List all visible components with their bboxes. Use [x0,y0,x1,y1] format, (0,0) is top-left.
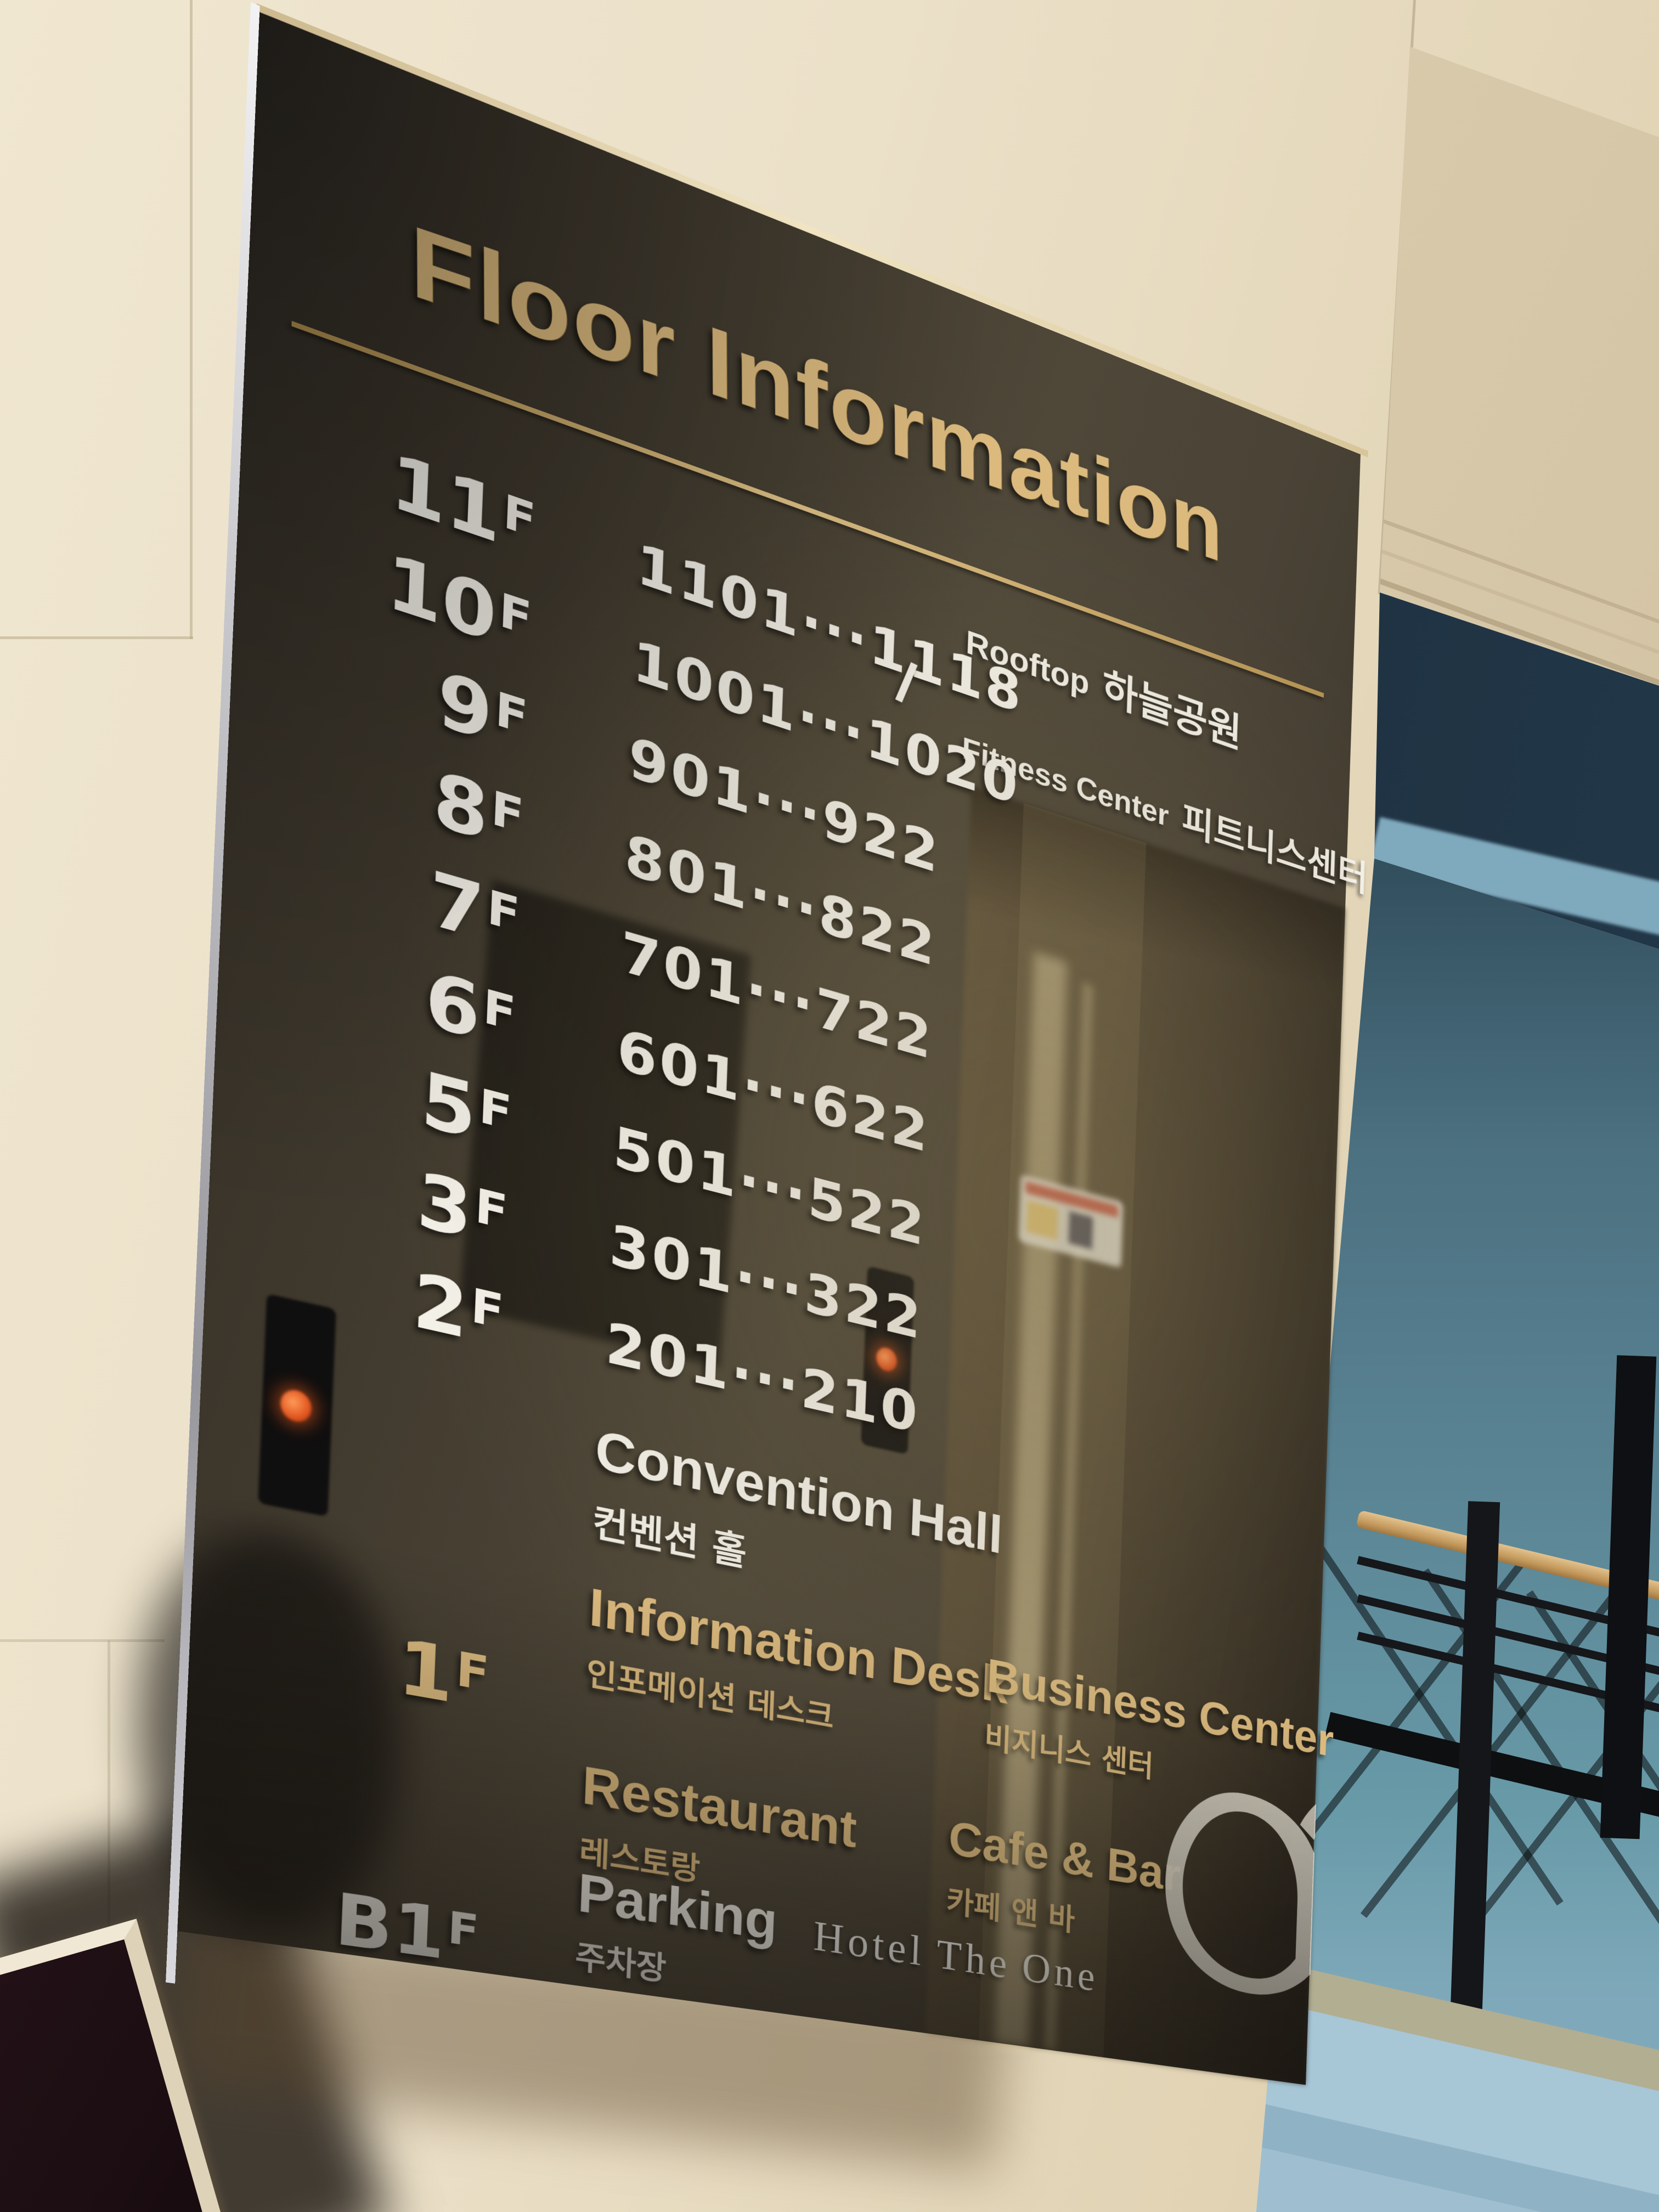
hotel-lobby-photo: Floor Information Rooftop하늘공원 Fitness Ce… [0,0,1659,2212]
hotel-logo-icon [1131,1743,1317,2023]
reflection-elevator-call-panel [258,1294,336,1517]
wall-tile-grout-horizontal-lower [0,1639,165,1642]
rooftop-label-ko: 하늘공원 [1102,663,1242,758]
fitness-facility: Fitness Center피트니스센터 [961,715,1369,903]
hotel-name-word: Hotel [812,1912,926,1975]
fitness-label-ko: 피트니스센터 [1181,797,1368,901]
hotel-name-word: The [936,1931,1011,1988]
floor-label-1f: 1F [286,1602,490,1726]
hotel-name-word: One [1022,1944,1099,2000]
wall-tile-grout-horizontal [0,636,193,639]
reflection-light-streak [995,952,1067,2047]
reflection-warning-sticker [1018,1175,1124,1268]
wall-tile-grout-vertical [190,0,193,639]
parking-label-ko: 주차장 [574,1931,667,1990]
floor-information-sign: Floor Information Rooftop하늘공원 Fitness Ce… [177,12,1361,2085]
elevator-call-button-light [280,1387,312,1424]
cafe-bar-label-ko: 카페 앤 바 [946,1876,1076,1940]
elevator-call-button-light [876,1345,897,1373]
reflection-light-streak [1044,983,1093,2051]
